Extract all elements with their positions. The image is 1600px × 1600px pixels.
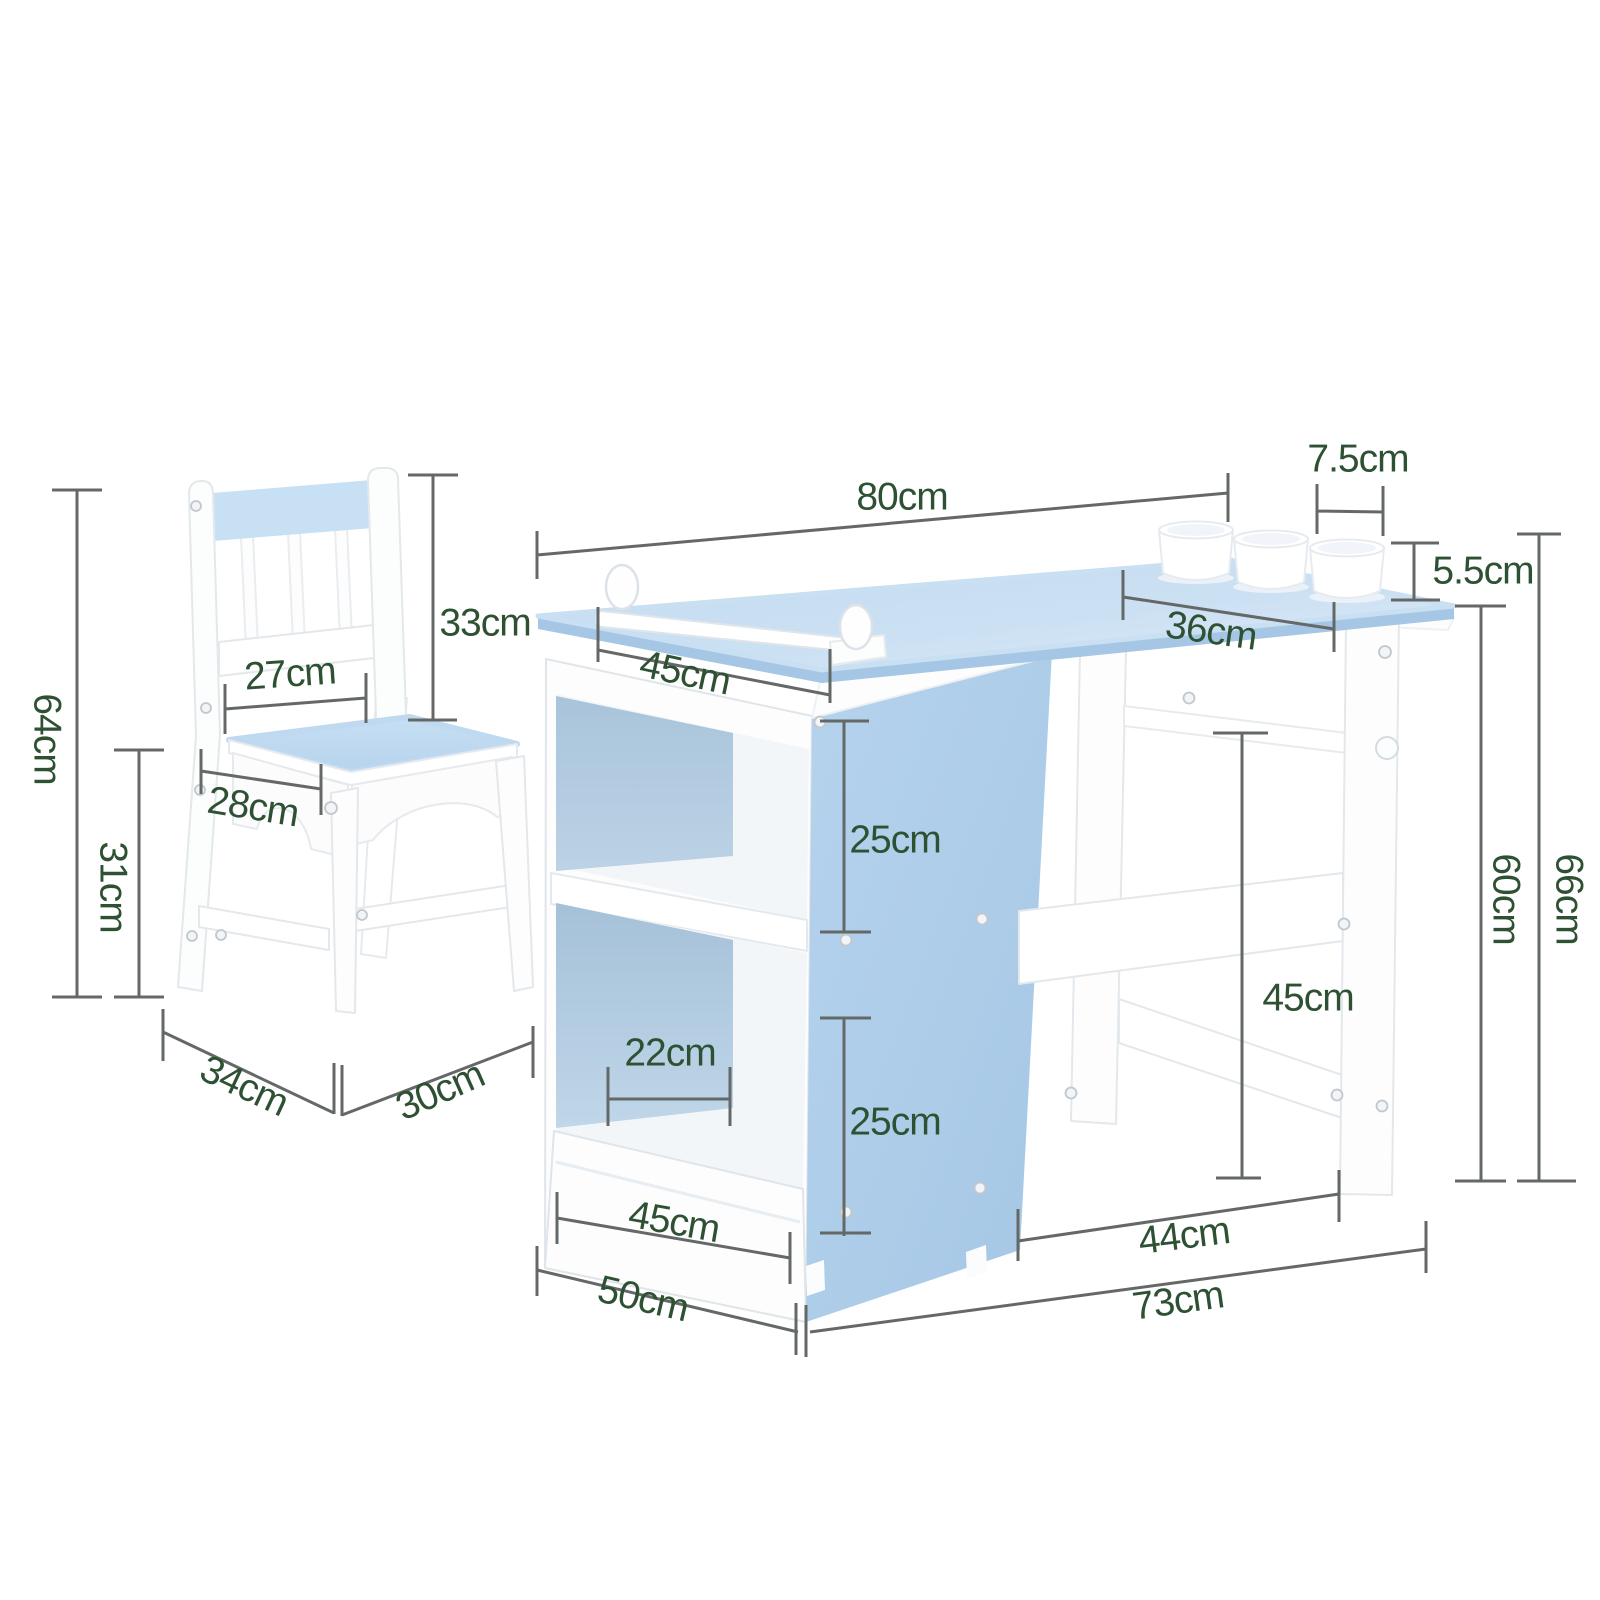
svg-text:66cm: 66cm <box>1548 853 1591 944</box>
svg-text:80cm: 80cm <box>856 476 947 519</box>
svg-text:7.5cm: 7.5cm <box>1307 438 1408 481</box>
svg-text:25cm: 25cm <box>849 819 940 862</box>
svg-text:25cm: 25cm <box>849 1101 940 1144</box>
svg-text:31cm: 31cm <box>92 841 135 932</box>
svg-text:27cm: 27cm <box>243 649 337 698</box>
svg-text:64cm: 64cm <box>26 693 69 784</box>
svg-text:45cm: 45cm <box>1262 977 1353 1020</box>
svg-text:60cm: 60cm <box>1485 853 1528 944</box>
svg-text:33cm: 33cm <box>439 602 530 645</box>
svg-text:5.5cm: 5.5cm <box>1432 550 1533 593</box>
svg-text:22cm: 22cm <box>624 1032 715 1075</box>
